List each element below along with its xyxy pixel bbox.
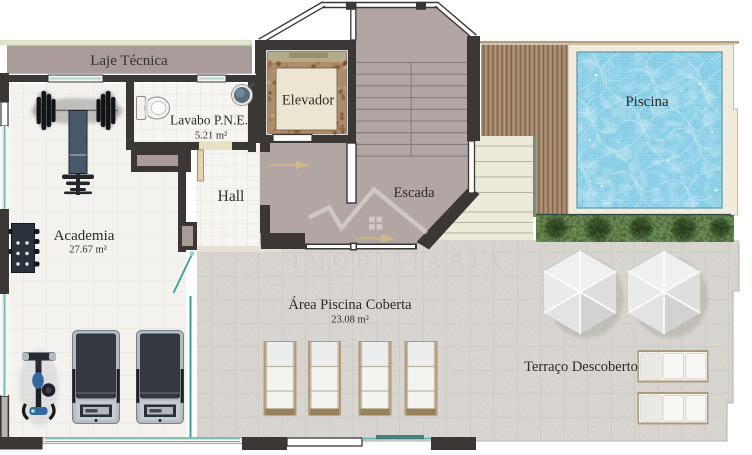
svg-text:Academia: Academia [54,228,115,244]
svg-text:Terraço Descoberto: Terraço Descoberto [524,359,638,375]
svg-text:5.21 m²: 5.21 m² [195,131,227,142]
svg-text:Lavabo P.N.E.: Lavabo P.N.E. [170,113,248,128]
svg-text:IMOBILIÁRIA: IMOBILIÁRIA [292,248,508,273]
svg-text:27.67 m²: 27.67 m² [69,245,107,256]
svg-text:Elevador: Elevador [282,93,335,109]
svg-text:Hall: Hall [218,188,245,205]
svg-text:Área Piscina Coberta: Área Piscina Coberta [288,296,412,313]
svg-text:Piscina: Piscina [625,94,669,110]
svg-text:Laje Técnica: Laje Técnica [90,53,168,69]
svg-text:23.08 m²: 23.08 m² [331,315,369,326]
svg-text:Escada: Escada [393,185,435,201]
